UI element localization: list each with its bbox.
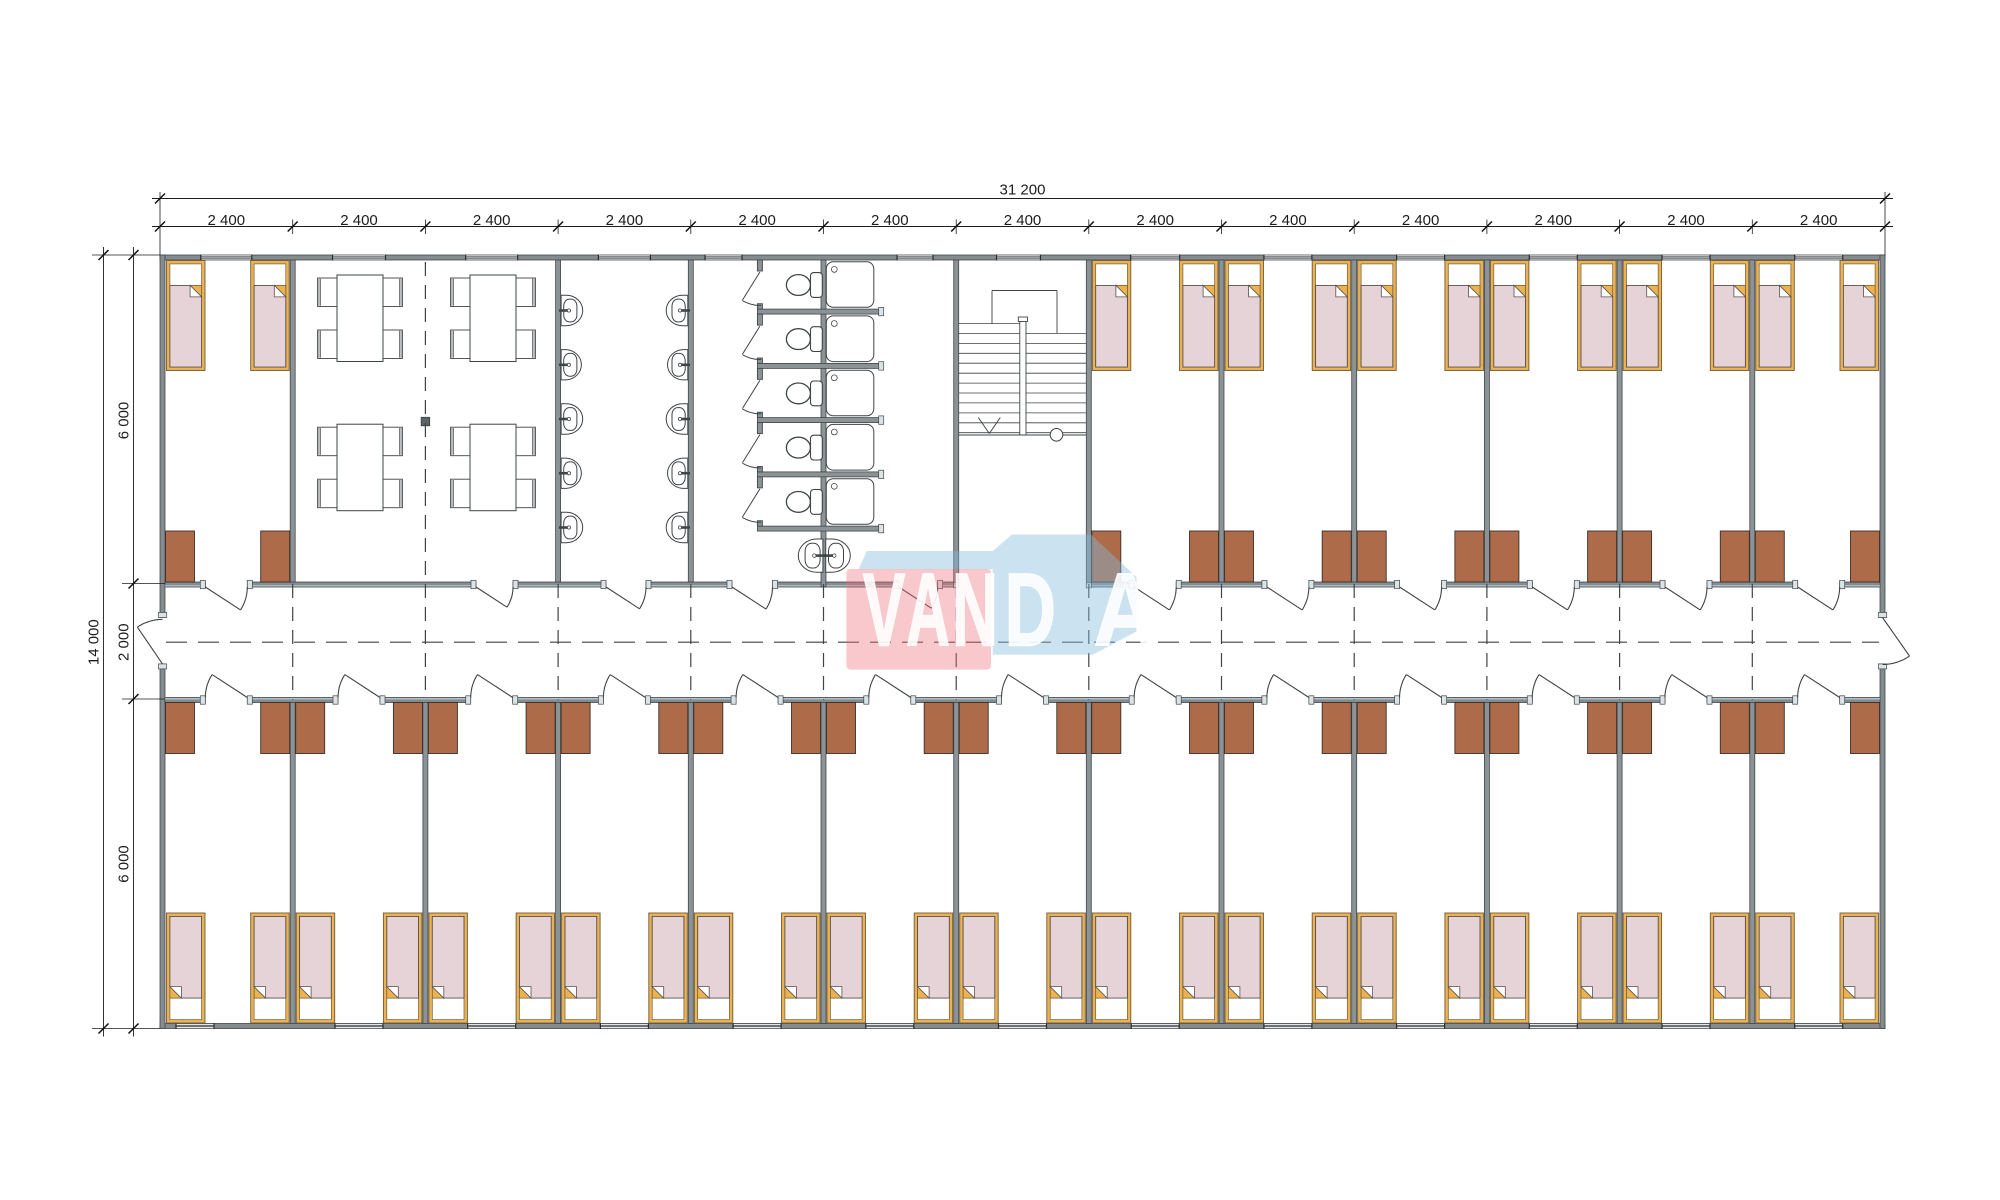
svg-text:2 400: 2 400 bbox=[1004, 212, 1042, 229]
svg-text:2 400: 2 400 bbox=[208, 212, 246, 229]
svg-text:D: D bbox=[1005, 551, 1057, 668]
svg-text:31 200: 31 200 bbox=[1000, 182, 1046, 199]
svg-text:A: A bbox=[1094, 552, 1157, 668]
svg-text:2 400: 2 400 bbox=[1800, 212, 1838, 229]
svg-text:2 400: 2 400 bbox=[738, 212, 776, 229]
svg-text:2 400: 2 400 bbox=[1402, 212, 1440, 229]
svg-text:2 400: 2 400 bbox=[606, 212, 644, 229]
svg-text:2 400: 2 400 bbox=[1269, 212, 1307, 229]
svg-text:V: V bbox=[863, 552, 906, 668]
svg-text:A: A bbox=[906, 553, 950, 669]
svg-text:14 000: 14 000 bbox=[86, 619, 103, 665]
svg-text:2 000: 2 000 bbox=[116, 623, 133, 661]
svg-text:2 400: 2 400 bbox=[1535, 212, 1573, 229]
svg-text:6 000: 6 000 bbox=[116, 845, 133, 883]
svg-text:2 400: 2 400 bbox=[340, 212, 378, 229]
svg-text:2 400: 2 400 bbox=[1667, 212, 1705, 229]
svg-text:N: N bbox=[952, 552, 998, 668]
svg-text:2 400: 2 400 bbox=[871, 212, 909, 229]
svg-text:2 400: 2 400 bbox=[1136, 212, 1174, 229]
svg-text:6 000: 6 000 bbox=[116, 402, 133, 440]
svg-text:2 400: 2 400 bbox=[473, 212, 511, 229]
